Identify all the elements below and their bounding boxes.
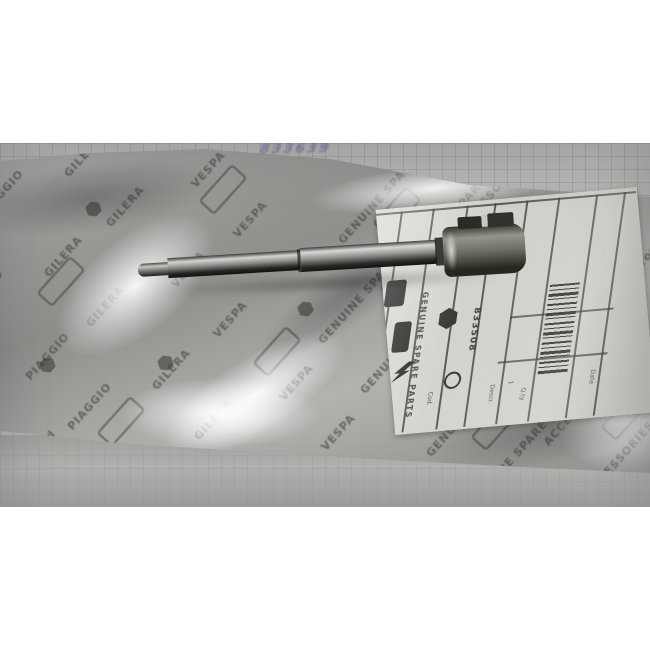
shaft-section-thick [300,240,437,272]
gilera-logo-icon [391,321,412,353]
label-field: Descr. [486,384,496,403]
label-field: Date [587,369,596,384]
bag-pattern-word: PIAGGIO [0,267,6,320]
label-field: Cod. [425,391,434,405]
bag-pattern-word: VESPA [319,412,358,454]
bag-shine [120,378,320,448]
clevis-prong [487,212,514,228]
clevis-prong [457,216,482,229]
shaft-tip [138,262,171,277]
label-column-line [593,192,626,416]
label-field: Q.ty [518,387,527,400]
bag-pattern-word: VESPA [211,299,250,341]
handwritten-note: 833639 [258,143,332,158]
piaggio-hexagon-icon [437,307,458,330]
label-qty-value: 1 [507,380,515,385]
product-photo: PIAGGIOGILERAVESPAGENUINE SPARE PARTSACC… [0,143,650,507]
shaft-section-thin [167,250,300,278]
label-part-number: 833508 [466,307,482,352]
clevis-head [442,222,527,277]
approved-roundel-icon [443,371,462,390]
